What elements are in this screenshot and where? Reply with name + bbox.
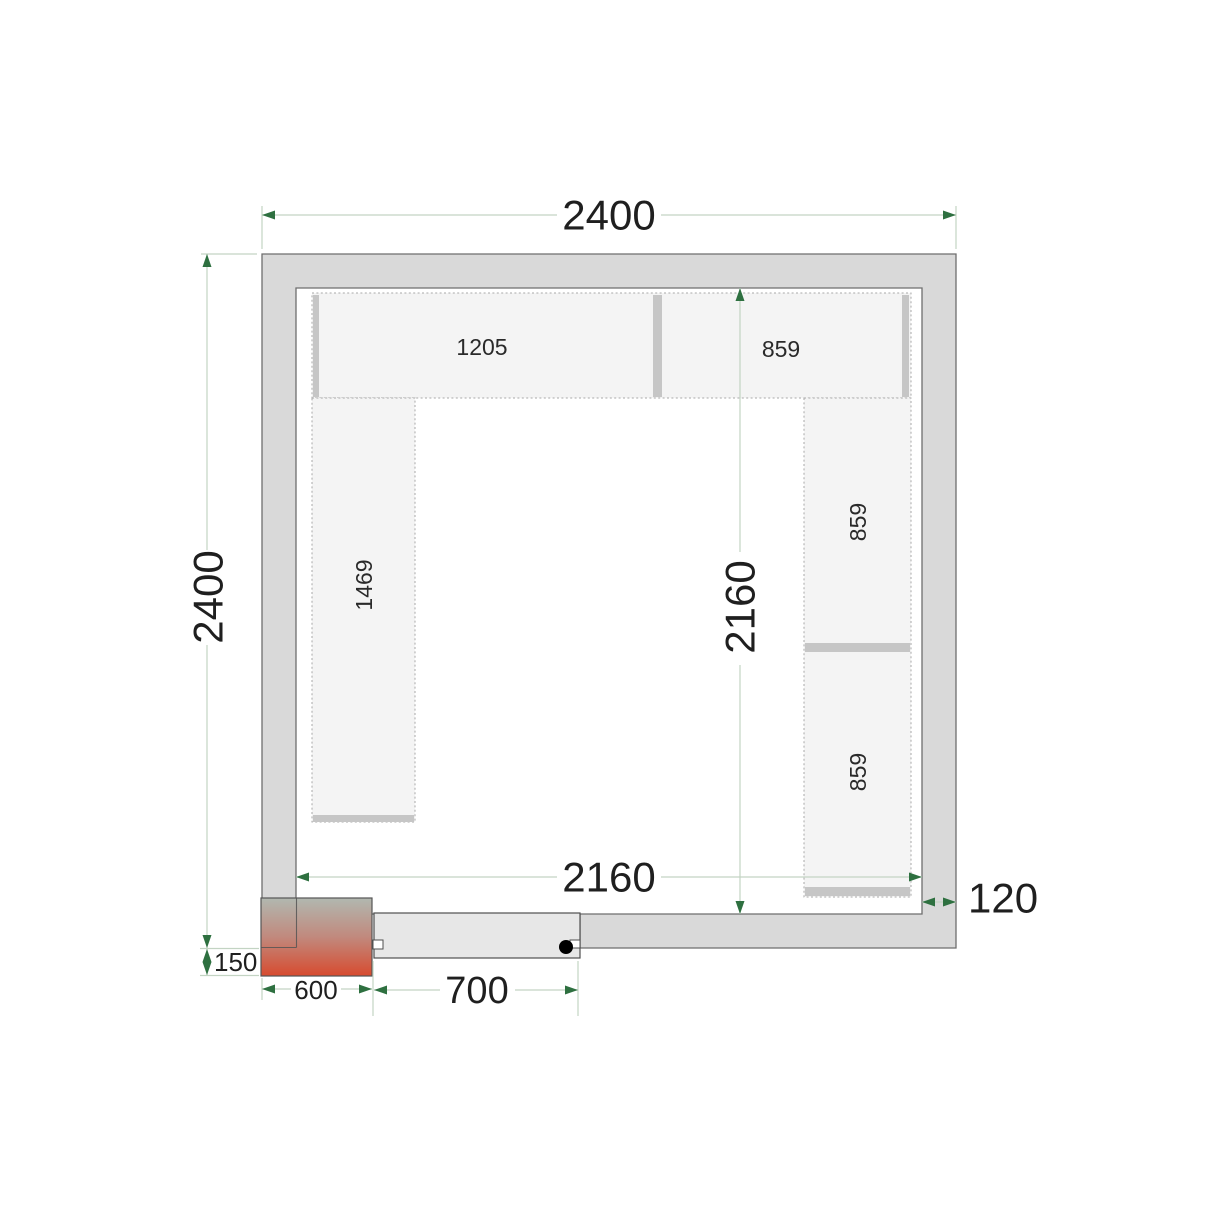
shelf-top-right-label: 859 [762, 336, 800, 362]
door-leaf [374, 913, 580, 958]
dim-unit-width-label: 600 [294, 975, 337, 1005]
cooling-unit-body [261, 898, 372, 976]
shelf-support-bar [805, 643, 910, 652]
shelf-right-upper-label: 859 [845, 503, 871, 541]
shelving: 1205 859 1469 859 859 [312, 293, 911, 897]
shelf-right-lower-label: 859 [845, 753, 871, 791]
dim-inner-width-label: 2160 [562, 854, 655, 901]
shelf-support-bar [313, 295, 319, 397]
floor-plan-page: 1205 859 1469 859 859 2400 2400 2 [0, 0, 1214, 1214]
door-handle-dot [559, 940, 573, 954]
floor-plan-drawing: 1205 859 1469 859 859 2400 2400 2 [0, 0, 1214, 1214]
shelf-support-bar [653, 295, 662, 397]
dim-unit-drop: 150 [200, 947, 259, 977]
dim-wall-thickness-label: 120 [968, 875, 1038, 922]
door-frame-notch-left [373, 940, 383, 949]
dim-outer-depth: 2400 [185, 254, 258, 948]
shelf-top-left-label: 1205 [456, 334, 507, 360]
dim-unit-drop-label: 150 [214, 947, 257, 977]
dim-door-width: 700 [374, 961, 578, 1016]
cooling-unit [261, 898, 372, 976]
dim-outer-width-label: 2400 [562, 192, 655, 239]
dim-outer-width: 2400 [262, 192, 956, 250]
shelf-left-label: 1469 [351, 559, 377, 610]
shelf-support-bar [902, 295, 909, 397]
dim-outer-depth-label: 2400 [185, 550, 232, 643]
shelf-support-bar [313, 815, 414, 822]
shelf-top [312, 293, 911, 398]
dim-inner-depth-label: 2160 [717, 560, 764, 653]
dim-door-width-label: 700 [445, 970, 508, 1012]
shelf-support-bar [805, 887, 910, 896]
door [373, 913, 580, 958]
